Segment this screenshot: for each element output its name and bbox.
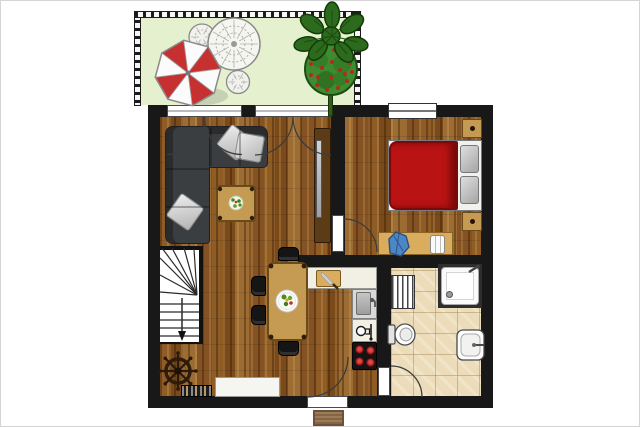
- shower-handle-icon: [469, 265, 480, 272]
- sofa-seams: [166, 128, 240, 207]
- door-arcs: [167, 117, 422, 397]
- terrace-door2-arc-right: [293, 117, 331, 155]
- faucet-icon: [370, 298, 375, 307]
- coffee-machine-icon: [357, 324, 373, 341]
- stairs-treads: [160, 248, 203, 343]
- washbasin: [457, 330, 484, 360]
- plan-overlay: [0, 0, 640, 427]
- floor-plan: [0, 0, 640, 427]
- knife-icon: [321, 272, 338, 289]
- entrance-door-arc: [308, 357, 348, 397]
- bathroom-door-arc: [391, 366, 422, 397]
- terrace-door1-arc-left: [167, 117, 205, 155]
- toilet: [388, 324, 415, 345]
- potted-plant-icon: [293, 2, 369, 116]
- blue-desk-chair: [389, 232, 409, 256]
- ships-wheel-icon: [158, 351, 198, 391]
- wicker-stool-icon: [227, 71, 250, 94]
- coffee-table-detail: [218, 187, 254, 220]
- bedroom-door-arc: [344, 219, 377, 252]
- dining-table-detail: [269, 264, 307, 340]
- terrace-door1-arc-right: [205, 117, 243, 155]
- terrace-door2-arc-left: [255, 117, 293, 155]
